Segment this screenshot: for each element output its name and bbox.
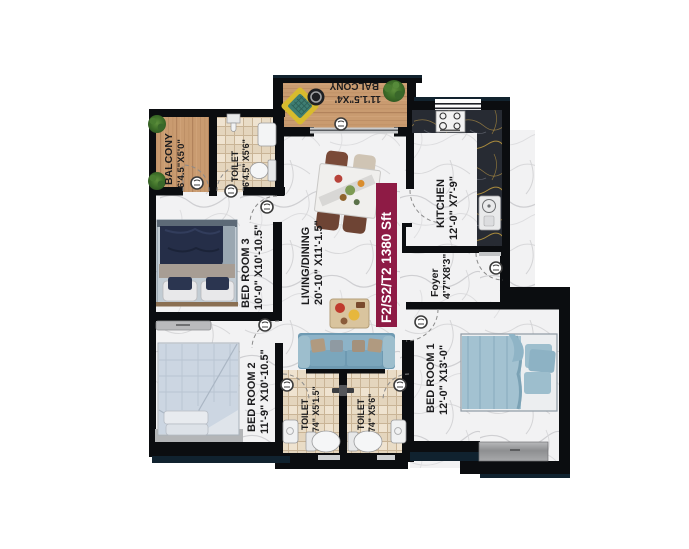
svg-text:74" X5'6": 74" X5'6" xyxy=(367,394,377,432)
svg-text:11'-9" X10'-10.5": 11'-9" X10'-10.5" xyxy=(259,349,271,434)
svg-text:12'-0" X7'-9": 12'-0" X7'-9" xyxy=(448,176,460,240)
svg-text:20'-10" X11'-1.5": 20'-10" X11'-1.5" xyxy=(313,220,325,305)
svg-text:BALCONY: BALCONY xyxy=(329,80,379,91)
svg-text:4'7"X8'3": 4'7"X8'3" xyxy=(441,254,453,299)
svg-text:F2/S2/T2 1380 Sft: F2/S2/T2 1380 Sft xyxy=(379,211,394,323)
svg-text:TOILET: TOILET xyxy=(300,398,310,430)
svg-text:BED ROOM 3: BED ROOM 3 xyxy=(240,238,252,308)
svg-text:TOILET: TOILET xyxy=(230,150,240,182)
svg-text:TOILET: TOILET xyxy=(356,398,366,430)
svg-text:BED ROOM 1: BED ROOM 1 xyxy=(425,343,437,413)
svg-text:Foyer: Foyer xyxy=(429,268,441,297)
svg-text:11'1.5"X4': 11'1.5"X4' xyxy=(335,93,381,104)
svg-text:6'4.5" X5'6": 6'4.5" X5'6" xyxy=(241,139,251,187)
svg-text:LIVING/DINING: LIVING/DINING xyxy=(300,227,312,305)
svg-text:74" X5'1.5": 74" X5'1.5" xyxy=(311,386,321,432)
svg-text:BED ROOM 2: BED ROOM 2 xyxy=(246,362,258,432)
svg-text:6'4.5"X5'0": 6'4.5"X5'0" xyxy=(176,139,187,188)
svg-text:BALCONY: BALCONY xyxy=(163,133,175,185)
svg-text:KITCHEN: KITCHEN xyxy=(435,179,447,228)
svg-text:12'-0" X13'-0": 12'-0" X13'-0" xyxy=(438,345,450,415)
svg-text:10'-0" X10'-10.5": 10'-0" X10'-10.5" xyxy=(253,225,265,310)
